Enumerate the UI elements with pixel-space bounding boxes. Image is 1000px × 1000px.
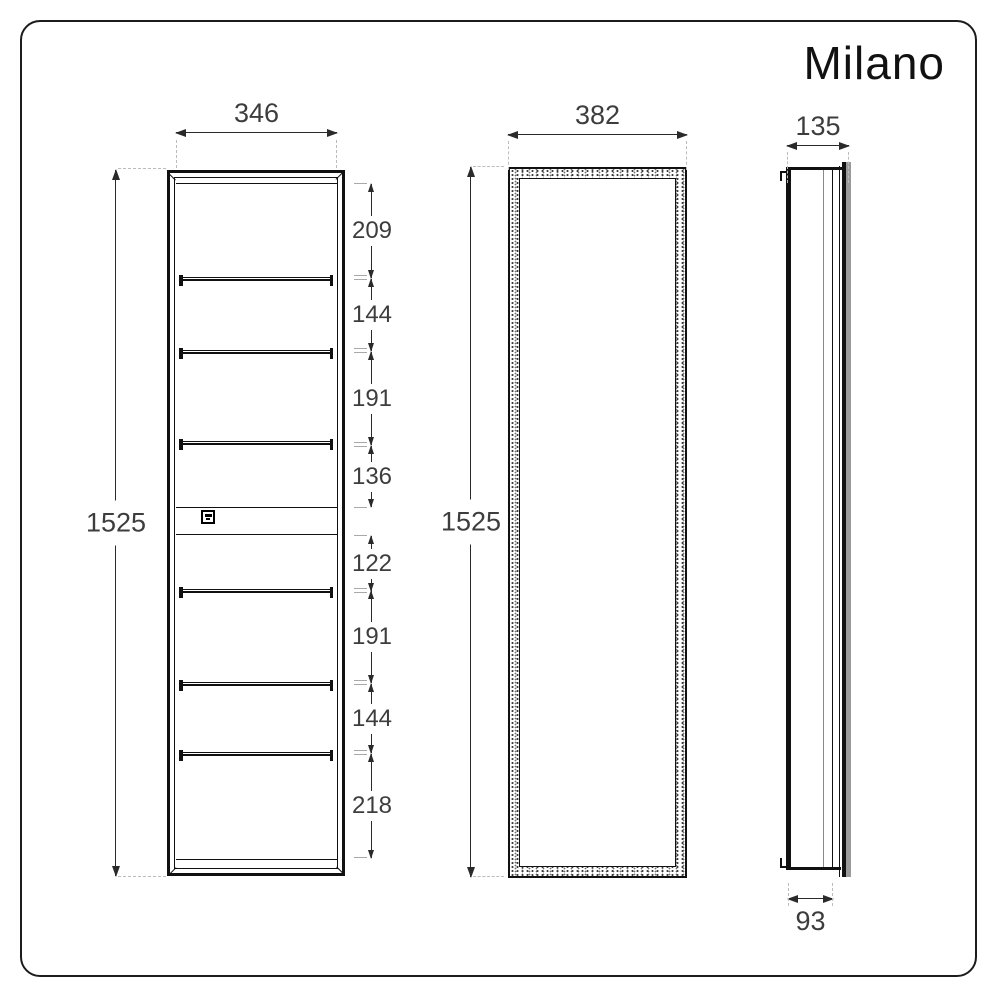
wall-bracket-top [780, 171, 787, 173]
spacing-dim-4: 136 [371, 446, 372, 507]
extension-stub [354, 535, 367, 536]
spacing-dim-8: 218 [371, 754, 372, 858]
extension-line [508, 141, 509, 170]
spacing-value: 191 [350, 384, 394, 414]
side-internal-line [823, 170, 824, 867]
side-mirror-face [846, 162, 852, 877]
brand-logo: Milano [803, 40, 945, 86]
front-width-dim-line: 346 [176, 132, 337, 133]
extension-line [686, 141, 687, 170]
shelf-line [180, 682, 332, 686]
shelf-line [180, 589, 332, 593]
wall-bracket-bottom [780, 866, 787, 868]
spacing-dim-1: 209 [371, 184, 372, 278]
shelf-line [180, 350, 332, 354]
door-width-value: 382 [571, 102, 624, 129]
extension-stub [354, 183, 367, 184]
side-carcass-front-line [832, 170, 833, 867]
shaver-socket-icon [201, 510, 215, 524]
side-top-edge [786, 167, 846, 170]
extension-line [788, 883, 789, 906]
shelf-line [180, 752, 332, 756]
door-height-dim-line: 1525 [470, 167, 471, 877]
spacing-dim-5: 122 [371, 536, 372, 591]
extension-line [473, 166, 504, 167]
spacing-value: 209 [350, 216, 394, 246]
side-depth-dim-line: 93 [788, 898, 833, 899]
door-width-dim-line: 382 [508, 134, 687, 135]
front-top-rail [176, 183, 337, 184]
extension-stub [354, 507, 367, 508]
extension-line [473, 876, 504, 877]
spacing-value: 191 [350, 622, 394, 652]
extension-line [118, 168, 166, 169]
spacing-dim-3: 191 [371, 352, 372, 445]
shelf-line [180, 277, 332, 281]
extension-line [832, 883, 833, 906]
spacing-value: 144 [350, 704, 394, 734]
extension-stub [354, 680, 367, 685]
technical-drawing-canvas: Milano 346 1525 [0, 0, 1000, 1000]
extension-stub [354, 857, 367, 858]
extension-line [336, 140, 337, 168]
socket-band-bottom-line [176, 534, 337, 535]
spacing-dim-7: 144 [371, 684, 372, 753]
extension-stub [354, 750, 367, 755]
socket-band-top-line [176, 507, 337, 508]
spacing-dim-2: 144 [371, 279, 372, 351]
side-door-inner-line [839, 166, 840, 877]
extension-line [176, 140, 177, 168]
spacing-value: 218 [350, 791, 394, 821]
spacing-value: 122 [350, 549, 394, 579]
front-width-value: 346 [230, 100, 283, 127]
spacing-value: 144 [350, 300, 394, 330]
door-height-value: 1525 [438, 500, 504, 545]
extension-stub [354, 588, 367, 593]
side-carcass-back [786, 168, 791, 869]
spacing-value: 136 [350, 462, 394, 492]
extension-stub [354, 275, 367, 280]
front-height-dim-line: 1525 [115, 170, 116, 876]
drawing-border [20, 20, 977, 977]
side-bottom-edge [786, 867, 841, 870]
extension-line [787, 152, 788, 183]
extension-stub [354, 348, 367, 353]
shelf-line [180, 441, 332, 445]
extension-stub [354, 442, 367, 447]
side-width-dim-line: 135 [787, 145, 849, 146]
side-width-value: 135 [791, 113, 844, 140]
front-height-value: 1525 [83, 501, 149, 546]
extension-line [118, 876, 166, 877]
extension-line [848, 152, 849, 183]
door-mirror-panel [519, 178, 676, 867]
side-depth-value: 93 [791, 908, 829, 935]
spacing-dim-6: 191 [371, 591, 372, 683]
front-bottom-rail [176, 859, 337, 860]
